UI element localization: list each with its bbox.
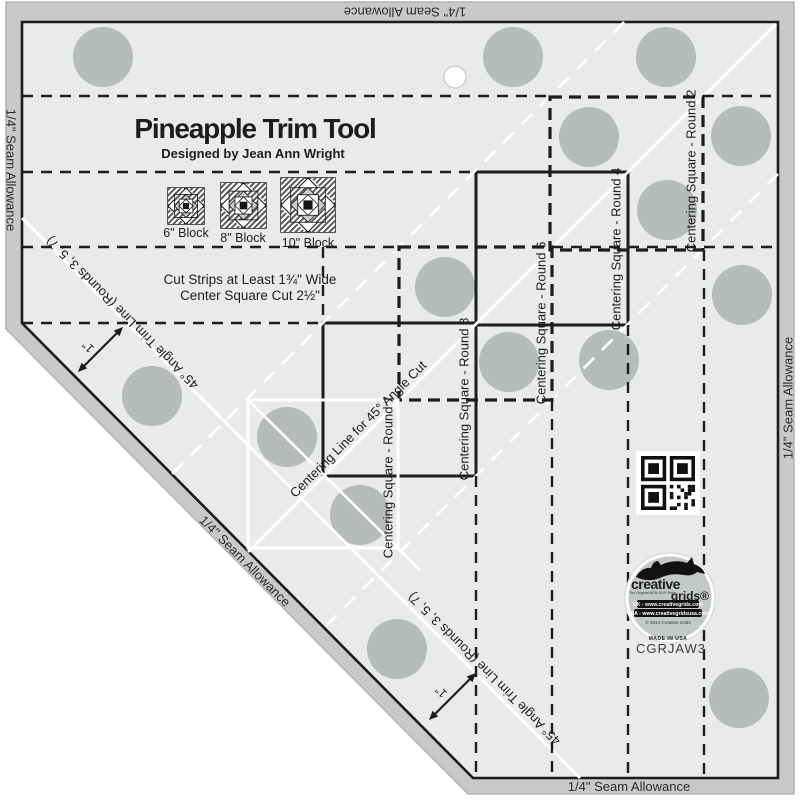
ruler-subtitle: Designed by Jean Ann Wright	[161, 146, 345, 161]
logo-tagline: The Original NON-SLIP Ruler	[629, 591, 677, 595]
seam-allowance-bottom: 1/4" Seam Allowance	[568, 779, 690, 794]
product-code: CGRJAW3	[636, 641, 706, 656]
grip-dot	[415, 257, 475, 317]
pineapple-trim-tool-ruler: Centering Square - Round 2 Centering Squ…	[0, 0, 800, 800]
grip-dot	[73, 27, 133, 87]
block-10-label: 10" Block	[282, 236, 335, 250]
logo-usa-text: USA - www.creativegridsusa.com	[627, 611, 709, 617]
grip-dot	[636, 27, 696, 87]
seam-allowance-right: 1/4" Seam Allowance	[781, 337, 796, 459]
grip-dot	[367, 619, 427, 679]
ruler-title: Pineapple Trim Tool	[134, 113, 375, 144]
pineapple-icon-part	[240, 202, 248, 210]
instructions-line-2: Center Square Cut 2½"	[180, 288, 320, 303]
seam-allowance-left: 1/4" Seam Allowance	[3, 109, 18, 231]
grip-dot	[712, 265, 772, 325]
instructions-line-1: Cut Strips at Least 1¾" Wide	[164, 272, 337, 287]
qr-code	[636, 451, 700, 515]
grip-dot	[711, 106, 771, 166]
grip-dot	[479, 332, 539, 392]
block-8-label: 8" Block	[220, 231, 266, 245]
centering-square-round-1-label: Centering Square - Round 1	[381, 396, 396, 559]
centering-square-round-4-label: Centering Square - Round 4	[609, 168, 624, 331]
logo-copyright: © 2014 Creative Grids	[645, 619, 691, 625]
centering-square-round-2-label: Centering Square - Round 2	[684, 90, 699, 253]
grip-dot	[559, 107, 619, 167]
grip-dot	[709, 668, 769, 728]
centering-square-round-8-label: Centering Square - Round 8	[457, 318, 472, 481]
centering-square-round-6-label: Centering Square - Round 6	[534, 242, 549, 405]
grip-dot	[579, 330, 639, 390]
hang-hole	[444, 66, 466, 88]
creative-grids-logo: creative grids® The Original NON-SLIP Ru…	[625, 553, 715, 643]
pineapple-icon-part	[183, 203, 189, 209]
block-6-label: 6" Block	[163, 226, 209, 240]
grip-dot	[483, 27, 543, 87]
pineapple-icon-part	[303, 200, 312, 209]
logo-uk-text: UK - www.creativegrids.com	[633, 602, 703, 608]
seam-allowance-top: 1/4" Seam Allowance	[344, 4, 466, 19]
